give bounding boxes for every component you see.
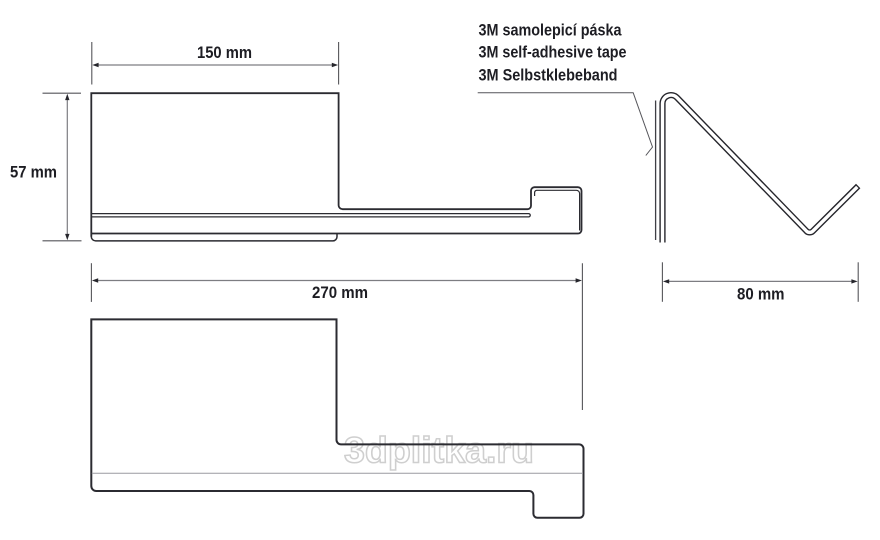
svg-text:270 mm: 270 mm bbox=[312, 283, 368, 302]
svg-text:57 mm: 57 mm bbox=[10, 162, 57, 181]
svg-text:3M samolepicí páska: 3M samolepicí páska bbox=[479, 21, 622, 40]
svg-text:3dplitka.ru: 3dplitka.ru bbox=[344, 430, 534, 471]
svg-text:3M Selbstklebeband: 3M Selbstklebeband bbox=[479, 65, 618, 84]
svg-text:80 mm: 80 mm bbox=[737, 284, 785, 303]
svg-text:3M self-adhesive tape: 3M self-adhesive tape bbox=[479, 43, 627, 62]
svg-text:150 mm: 150 mm bbox=[197, 43, 252, 62]
